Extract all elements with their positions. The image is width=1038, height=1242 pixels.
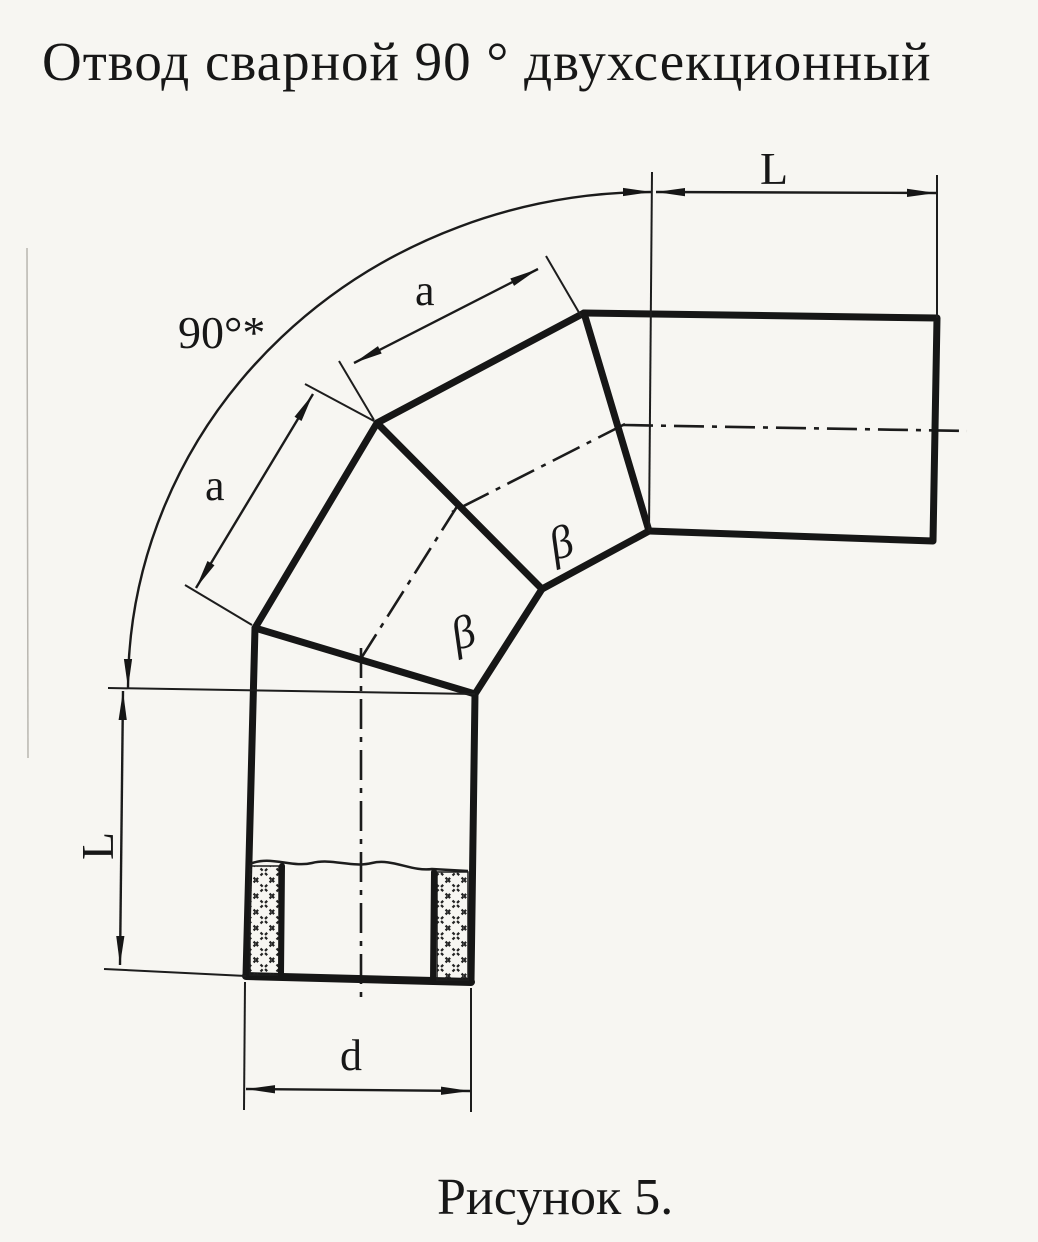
dim-a-left-label: a [205, 461, 225, 510]
wall-section-right-hatch [437, 872, 468, 980]
vertical-pipe-right-edge [471, 694, 475, 982]
wall-section-left-hatch [250, 866, 279, 975]
dim-L-left-label: L [72, 832, 123, 860]
bore-edge-left [281, 866, 282, 975]
dim-a-top-label: a [415, 266, 435, 315]
drawing-title: Отвод сварной 90 ° двухсекционный [42, 31, 932, 92]
scan-edge-artifact [27, 248, 28, 758]
dimension-line [656, 192, 936, 193]
figure-caption: Рисунок 5. [437, 1169, 673, 1226]
angle-label: 90°* [178, 307, 265, 358]
bore-edge-right [433, 872, 434, 980]
dim-d-label: d [340, 1031, 362, 1080]
elbow-technical-drawing: Отвод сварной 90 ° двухсекционный 90°* [0, 0, 1038, 1242]
extension-line-left [244, 982, 245, 1110]
dim-L-top-label: L [760, 143, 788, 194]
